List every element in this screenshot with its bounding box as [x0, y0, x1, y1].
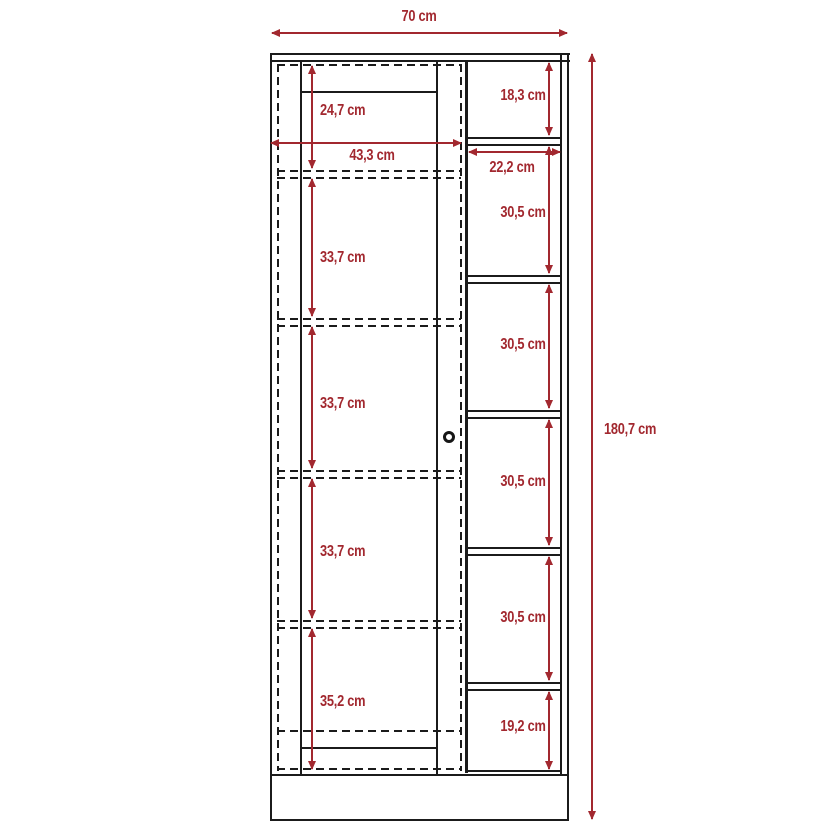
- dim-arrow-door-section-2: [311, 179, 313, 316]
- dim-label-door-section-2: 33,7 cm: [320, 249, 365, 267]
- hidden-shelf-2a: [277, 318, 461, 320]
- hidden-shelf-2b: [277, 325, 461, 327]
- dim-label-door-section-1: 24,7 cm: [320, 102, 365, 120]
- dim-label-shelf-width: 22,2 cm: [489, 159, 534, 177]
- hidden-shelf-3b: [277, 477, 461, 479]
- dim-label-shelf-section-4: 30,5 cm: [501, 473, 546, 491]
- cabinet-left-side-line: [270, 53, 272, 821]
- dim-label-shelf-section-6: 19,2 cm: [501, 718, 546, 736]
- dim-label-door-section-5: 35,2 cm: [320, 693, 365, 711]
- dim-label-shelf-section-1: 18,3 cm: [501, 87, 546, 105]
- dim-arrow-door-section-5: [311, 629, 313, 769]
- shelf-3-top-line: [468, 410, 561, 412]
- base-bottom-line: [270, 819, 569, 821]
- dim-arrow-shelf-section-5: [548, 557, 550, 680]
- dim-arrow-door-section-3: [311, 327, 313, 468]
- dim-arrow-overall-height: [591, 54, 593, 819]
- dim-label-door-width: 43,3 cm: [349, 147, 394, 165]
- dim-arrow-shelf-section-1: [548, 63, 550, 135]
- shelf-2-top-line: [468, 275, 561, 277]
- dim-arrow-shelf-section-3: [548, 285, 550, 408]
- door-frame-left-line: [300, 60, 302, 776]
- shelfcol-bottom-line: [465, 770, 562, 772]
- hidden-shelf-4b: [277, 627, 461, 629]
- cabinet-top-inner-line: [270, 60, 570, 62]
- dim-arrow-door-section-1: [311, 66, 313, 168]
- dim-arrow-shelf-section-4: [548, 420, 550, 545]
- dim-arrow-overall-width: [272, 32, 567, 34]
- hidden-shelf-1b: [277, 177, 461, 179]
- dimension-diagram: 70 cm 180,7 cm 24,7 cm 43,3 cm 33,7 cm 3…: [0, 0, 840, 840]
- cabinet-top-outer-line: [270, 53, 570, 55]
- shelf-4-top-line: [468, 547, 561, 549]
- dim-label-shelf-section-2: 30,5 cm: [501, 204, 546, 222]
- cabinet-right-inner-line: [560, 53, 562, 776]
- dim-label-overall-width: 70 cm: [401, 8, 436, 26]
- door-knob[interactable]: [443, 431, 455, 443]
- dim-label-door-section-3: 33,7 cm: [320, 395, 365, 413]
- door-frame-right-line: [436, 60, 438, 776]
- dim-arrow-shelf-section-2: [548, 147, 550, 273]
- dim-arrow-door-section-4: [311, 479, 313, 618]
- hidden-shelf-4a: [277, 620, 461, 622]
- dim-arrow-door-width: [271, 142, 461, 144]
- base-top-line: [270, 774, 569, 776]
- shelf-1-top-line: [468, 137, 561, 139]
- door-panel-top-line: [300, 91, 438, 93]
- dim-label-overall-height: 180,7 cm: [604, 421, 656, 439]
- hidden-shelf-3a: [277, 470, 461, 472]
- dim-label-shelf-section-5: 30,5 cm: [501, 609, 546, 627]
- hidden-shelf-5: [277, 730, 461, 732]
- door-dashed-top: [277, 64, 461, 66]
- shelf-5-top-line: [468, 682, 561, 684]
- dim-label-door-section-4: 33,7 cm: [320, 543, 365, 561]
- door-panel-bottom-line: [300, 747, 438, 749]
- hidden-shelf-1a: [277, 170, 461, 172]
- door-dashed-bottom: [277, 768, 461, 770]
- dim-arrow-shelf-section-6: [548, 692, 550, 769]
- dim-label-shelf-section-3: 30,5 cm: [501, 336, 546, 354]
- cabinet-right-outer-line: [567, 53, 569, 821]
